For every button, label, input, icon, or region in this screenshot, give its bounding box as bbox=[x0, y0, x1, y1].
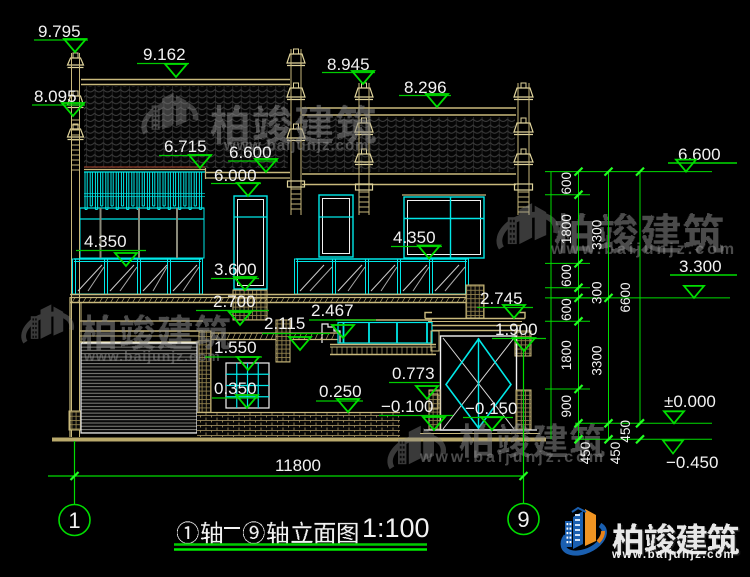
svg-text:3300: 3300 bbox=[590, 220, 605, 250]
svg-text:11800: 11800 bbox=[275, 456, 321, 475]
svg-text:300: 300 bbox=[590, 282, 605, 305]
svg-text:1.550: 1.550 bbox=[214, 338, 257, 357]
svg-text:4.350: 4.350 bbox=[393, 228, 436, 247]
svg-text:2.467: 2.467 bbox=[311, 301, 354, 320]
svg-text:1: 1 bbox=[68, 508, 80, 533]
svg-text:6.600: 6.600 bbox=[678, 145, 721, 164]
svg-text:6.715: 6.715 bbox=[164, 137, 207, 156]
svg-text:600: 600 bbox=[559, 264, 574, 287]
svg-text:4.350: 4.350 bbox=[84, 232, 127, 251]
svg-text:www.baijunjz.com: www.baijunjz.com bbox=[611, 549, 735, 561]
svg-text:www.baijunjz.com: www.baijunjz.com bbox=[83, 348, 221, 364]
svg-text:−0.100: −0.100 bbox=[381, 397, 433, 416]
svg-text:2.115: 2.115 bbox=[264, 314, 305, 333]
svg-text:9.162: 9.162 bbox=[143, 45, 186, 64]
svg-text:9: 9 bbox=[517, 507, 529, 532]
svg-text:600: 600 bbox=[559, 298, 574, 321]
svg-text:450: 450 bbox=[578, 442, 593, 465]
svg-text:600: 600 bbox=[559, 172, 574, 195]
svg-text:450: 450 bbox=[608, 442, 623, 465]
svg-text:1800: 1800 bbox=[559, 214, 574, 244]
svg-text:450: 450 bbox=[618, 420, 633, 443]
svg-text:0.773: 0.773 bbox=[392, 364, 435, 383]
svg-text:3.300: 3.300 bbox=[679, 257, 722, 276]
svg-text:1.900: 1.900 bbox=[495, 320, 538, 339]
svg-text:900: 900 bbox=[559, 395, 574, 418]
svg-text:±0.000: ±0.000 bbox=[664, 392, 716, 411]
svg-text:1800: 1800 bbox=[559, 340, 574, 370]
svg-text:−0.450: −0.450 bbox=[666, 453, 718, 472]
svg-text:3300: 3300 bbox=[590, 346, 605, 376]
svg-text:2.700: 2.700 bbox=[213, 292, 256, 311]
svg-text:−0.150: −0.150 bbox=[465, 399, 517, 418]
svg-text:6600: 6600 bbox=[618, 282, 633, 312]
svg-text:1:100: 1:100 bbox=[362, 513, 430, 543]
